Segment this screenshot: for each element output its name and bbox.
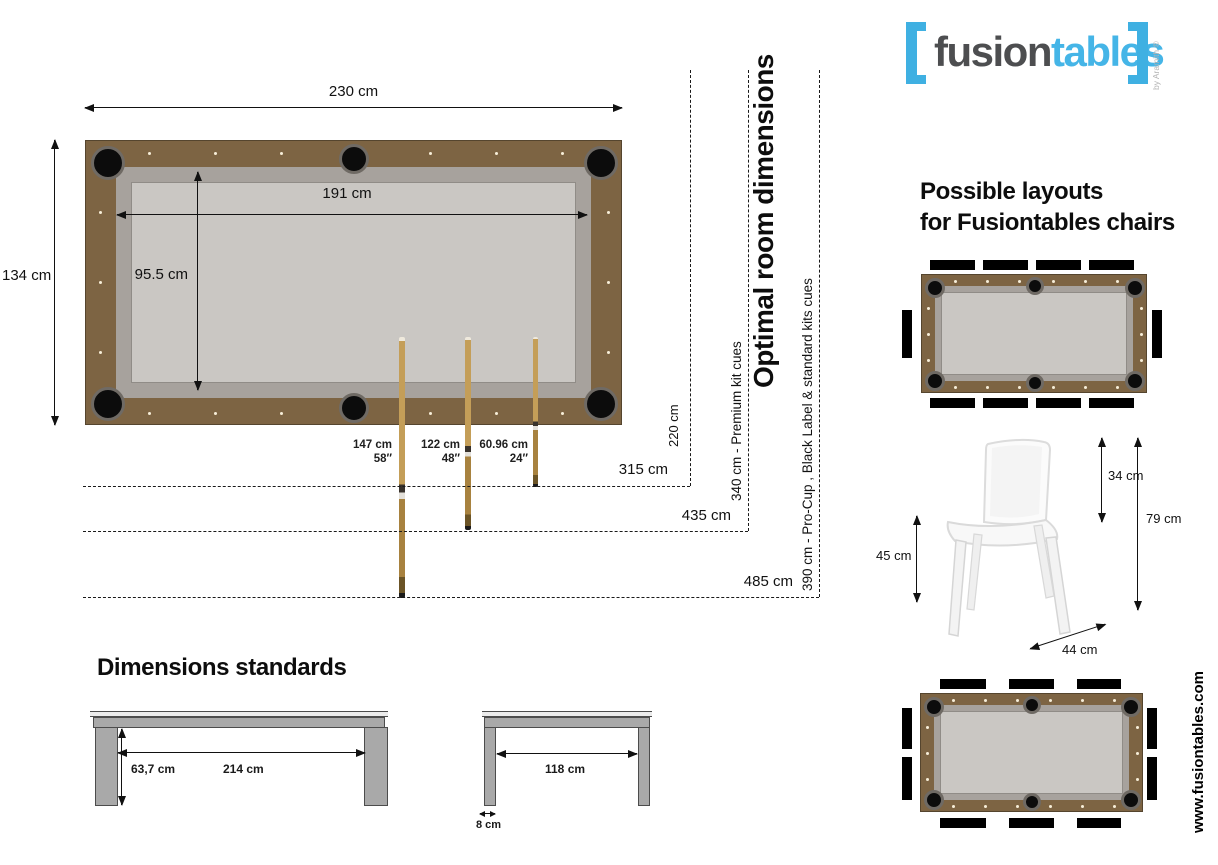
rail-dot (1136, 752, 1139, 755)
rail-dot (148, 152, 151, 155)
rail-dot (952, 699, 955, 702)
chair-bench-bar (1036, 260, 1081, 270)
side-view-left-leg (95, 727, 118, 806)
rail-dot (954, 280, 957, 283)
layouts-title-line1: Possible layouts (920, 176, 1175, 207)
table-pocket (924, 697, 944, 717)
rail-dot (984, 699, 987, 702)
rail-dot (1052, 280, 1055, 283)
room-side-clearance-label: 220 cm (666, 404, 681, 447)
rail-dot (1140, 359, 1143, 362)
table-pocket (584, 387, 618, 421)
rail-dot (1084, 280, 1087, 283)
leg-width-label: 8 cm (476, 819, 501, 832)
chair-bench-bar (902, 757, 912, 800)
chair-bench-bar (902, 708, 912, 749)
rail-dot (1116, 280, 1119, 283)
rail-dot (1140, 307, 1143, 310)
layout-1-cloth (941, 292, 1127, 375)
rail-dot (561, 152, 564, 155)
layouts-title: Possible layouts for Fusiontables chairs (920, 176, 1175, 238)
table-pocket (924, 790, 944, 810)
playfield-width-arrow (117, 214, 587, 215)
room-315-vertical-line (690, 70, 691, 486)
end-view-left-leg (484, 727, 496, 806)
rail-dot (1136, 778, 1139, 781)
rail-dot (1084, 386, 1087, 389)
rail-dot (1016, 805, 1019, 808)
website-url: www.fusiontables.com (1190, 671, 1207, 833)
room-485-horizontal-line (83, 597, 819, 598)
rail-dot (1113, 805, 1116, 808)
playfield-depth-arrow (197, 172, 198, 390)
side-view-right-leg (364, 727, 388, 806)
rail-dot (927, 307, 930, 310)
room-485-vertical-line (819, 70, 820, 597)
table-pocket (91, 387, 125, 421)
rail-dot (495, 412, 498, 415)
chair-bench-bar (930, 398, 975, 408)
chair-bench-bar (983, 398, 1028, 408)
table-pocket (925, 278, 945, 298)
chair-bench-bar (930, 260, 975, 270)
outer-depth-arrow (54, 140, 55, 425)
logo-left-bracket-icon (906, 22, 926, 84)
cue-147-label: 147 cm 58′′ (330, 438, 392, 467)
layout-1-table (921, 274, 1147, 393)
room-315-horizontal-line (83, 486, 690, 487)
rail-dot (984, 805, 987, 808)
chair-bench-bar (983, 260, 1028, 270)
table-pocket (1023, 793, 1041, 811)
room-435-horizontal-line (83, 531, 748, 532)
room-procup-note: 390 cm - Pro-Cup , Black Label & standar… (800, 278, 815, 591)
rail-dot (1116, 386, 1119, 389)
end-view-apron (484, 717, 650, 728)
logo-right-bracket-icon (1128, 22, 1148, 84)
table-pocket (91, 146, 125, 180)
rail-dot (561, 412, 564, 415)
leg-height-label: 63,7 cm (131, 763, 175, 777)
rail-dot (607, 351, 610, 354)
rail-dot (429, 152, 432, 155)
chair-bench-bar (940, 818, 986, 828)
rail-dot (1049, 805, 1052, 808)
rail-dot (214, 152, 217, 155)
cue-60cm (533, 337, 538, 487)
chair-bench-bar (1077, 679, 1121, 689)
table-pocket (339, 393, 369, 423)
rail-dot (1052, 386, 1055, 389)
chair-bench-bar (1077, 818, 1121, 828)
rail-dot (280, 412, 283, 415)
rail-dot (986, 386, 989, 389)
rail-dot (607, 211, 610, 214)
playfield-depth-label: 95.5 cm (95, 266, 188, 283)
chair-bench-bar (1147, 708, 1157, 749)
table-pocket (339, 144, 369, 174)
table-pocket (1023, 696, 1041, 714)
table-pocket (584, 146, 618, 180)
chair-seat-height-arrow (916, 516, 917, 602)
rail-dot (954, 386, 957, 389)
chair-backrest-label: 34 cm (1108, 469, 1143, 484)
room-min-width-label: 315 cm (568, 461, 668, 478)
cue-122cm (465, 337, 471, 530)
rail-dot (495, 152, 498, 155)
rail-dot (1136, 726, 1139, 729)
cue-122-label: 122 cm 48′′ (398, 438, 460, 467)
rail-dot (429, 412, 432, 415)
chair-illustration (922, 434, 1107, 646)
playfield-width-label: 191 cm (117, 185, 577, 202)
side-view-apron (93, 717, 385, 728)
chair-bench-bar (1009, 679, 1054, 689)
standards-title: Dimensions standards (97, 652, 346, 683)
chair-bench-bar (1089, 398, 1134, 408)
chair-backrest-arrow (1101, 438, 1102, 522)
rail-dot (1081, 699, 1084, 702)
room-premium-note: 340 cm - Premium kit cues (729, 341, 744, 501)
table-pocket (1121, 697, 1141, 717)
rail-dot (214, 412, 217, 415)
logo-byline: by Aramith ® (1151, 41, 1161, 90)
rail-dot (148, 412, 151, 415)
fusiontables-dimensions-poster: fusiontables by Aramith ® 230 cm 134 cm … (0, 0, 1218, 865)
outer-width-label: 230 cm (85, 83, 622, 100)
leg-span-arrow-214 (118, 752, 365, 753)
leg-span-label-118: 118 cm (545, 763, 585, 777)
chair-height-arrow (1137, 438, 1138, 610)
cue-122-cm: 122 cm (398, 438, 460, 452)
cue-60-inches: 24′′ (458, 452, 528, 466)
table-pocket (1125, 278, 1145, 298)
end-view-right-leg (638, 727, 650, 806)
cue-60-cm: 60.96 cm (458, 438, 528, 452)
cue-147cm (399, 337, 405, 598)
leg-width-arrow (480, 813, 495, 814)
chair-bench-bar (902, 310, 912, 358)
rail-dot (1016, 699, 1019, 702)
layouts-title-line2: for Fusiontables chairs (920, 207, 1175, 238)
rail-dot (1081, 805, 1084, 808)
table-pocket (925, 371, 945, 391)
leg-height-arrow (121, 729, 122, 805)
table-pocket (1125, 371, 1145, 391)
chair-height-label: 79 cm (1146, 512, 1181, 527)
rail-dot (926, 752, 929, 755)
chair-seat-height-label: 45 cm (876, 549, 911, 564)
rail-dot (952, 805, 955, 808)
rail-dot (926, 778, 929, 781)
rail-dot (607, 281, 610, 284)
layout-2-cloth (940, 711, 1123, 794)
rail-dot (280, 152, 283, 155)
cue-147-cm: 147 cm (330, 438, 392, 452)
optimal-room-title: Optimal room dimensions (748, 54, 780, 388)
rail-dot (926, 726, 929, 729)
logo-word-fusion: fusion (934, 28, 1051, 75)
outer-depth-label: 134 cm (2, 267, 51, 284)
cue-60-label: 60.96 cm 24′′ (458, 438, 528, 467)
rail-dot (1140, 333, 1143, 336)
rail-dot (1049, 699, 1052, 702)
leg-span-label-214: 214 cm (223, 763, 264, 777)
chair-bench-bar (1089, 260, 1134, 270)
room-max-width-label: 485 cm (693, 573, 793, 590)
rail-dot (1113, 699, 1116, 702)
rail-dot (986, 280, 989, 283)
cue-122-inches: 48′′ (398, 452, 460, 466)
chair-bench-bar (1147, 757, 1157, 800)
cue-147-inches: 58′′ (330, 452, 392, 466)
layout-2-table (920, 693, 1143, 812)
room-mid-width-label: 435 cm (631, 507, 731, 524)
outer-width-arrow (85, 107, 622, 108)
rail-dot (927, 333, 930, 336)
rail-dot (99, 351, 102, 354)
table-pocket (1121, 790, 1141, 810)
table-pocket (1026, 277, 1044, 295)
rail-dot (927, 359, 930, 362)
chair-bench-bar (1036, 398, 1081, 408)
chair-bench-bar (1009, 818, 1054, 828)
chair-bench-bar (1152, 310, 1162, 358)
rail-dot (1018, 386, 1021, 389)
chair-bench-bar (940, 679, 986, 689)
table-pocket (1026, 374, 1044, 392)
rail-dot (1018, 280, 1021, 283)
rail-dot (99, 211, 102, 214)
chair-depth-label: 44 cm (1062, 643, 1097, 658)
leg-span-arrow-118 (497, 753, 637, 754)
